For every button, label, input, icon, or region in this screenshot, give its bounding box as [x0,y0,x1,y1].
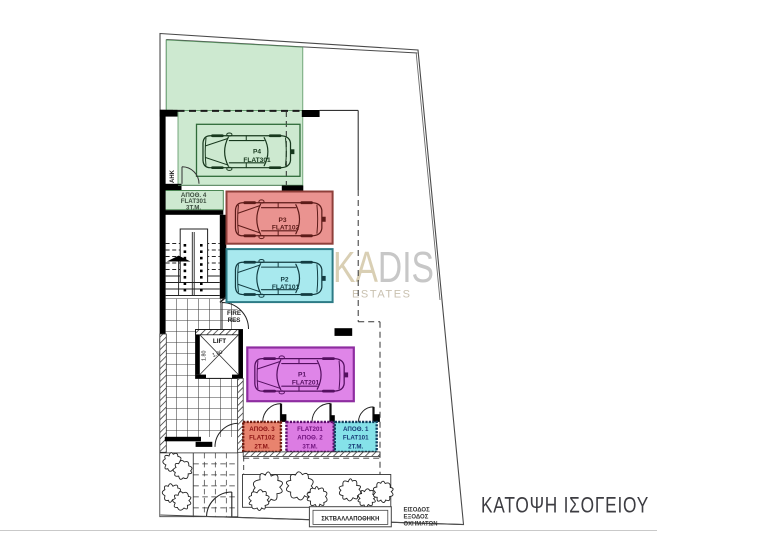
svg-text:FLAT102: FLAT102 [272,225,300,232]
svg-text:ΚΑΤΟΨΗ ΙΣΟΓΕΙΟΥ: ΚΑΤΟΨΗ ΙΣΟΓΕΙΟΥ [481,493,649,518]
svg-text:ΑΠΟΘ. 2: ΑΠΟΘ. 2 [297,435,323,442]
svg-text:FLAT201: FLAT201 [292,380,320,387]
svg-text:3Τ.Μ.: 3Τ.Μ. [302,443,317,450]
svg-text:ESTATES: ESTATES [352,289,414,301]
svg-text:ΕΞΟΔΟΣ: ΕΞΟΔΟΣ [404,515,429,521]
svg-text:2Τ.Μ.: 2Τ.Μ. [254,443,269,450]
svg-text:P1: P1 [298,372,306,379]
svg-text:FLAT101: FLAT101 [343,435,369,442]
svg-text:FLAT101: FLAT101 [272,284,300,291]
svg-text:ΑΠΟΘ. 1: ΑΠΟΘ. 1 [343,426,369,433]
svg-text:FLAT301: FLAT301 [243,157,271,164]
svg-text:P2: P2 [280,277,288,284]
svg-text:ΕΙΣΟΔΟΣ: ΕΙΣΟΔΟΣ [404,508,431,514]
svg-text:FIRE: FIRE [227,310,241,317]
svg-text:P4: P4 [253,149,261,156]
svg-text:LIFT: LIFT [213,338,226,345]
svg-text:ΟΧΗΜΑΤΩΝ: ΟΧΗΜΑΤΩΝ [404,522,438,528]
svg-text:KADIS: KADIS [333,243,434,292]
svg-text:P3: P3 [278,217,286,224]
svg-text:FLAT102: FLAT102 [249,435,275,442]
svg-text:FLAT201: FLAT201 [297,426,323,433]
svg-text:ΑΠΟΘ. 3: ΑΠΟΘ. 3 [249,426,275,433]
svg-text:ΣΚΤΒΑΛΛΑΠΟΘΗΚΗ: ΣΚΤΒΑΛΛΑΠΟΘΗΚΗ [321,516,379,522]
svg-text:1.80: 1.80 [202,351,208,362]
svg-text:AHK: AHK [170,169,176,183]
svg-text:RES: RES [228,317,241,324]
svg-text:2Τ.Μ.: 2Τ.Μ. [348,443,363,450]
